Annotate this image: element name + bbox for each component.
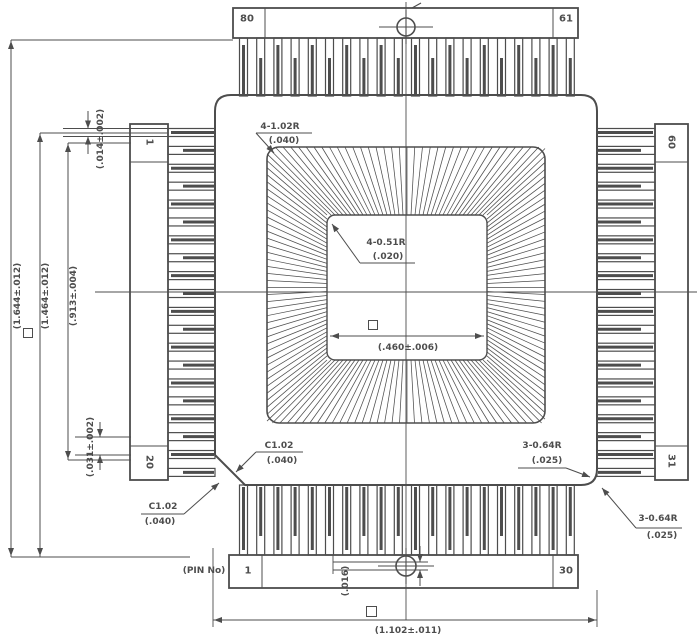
dim-lead-width: (.014±.002): [96, 109, 106, 169]
dim-lead-span-height: (.913±.004): [69, 266, 79, 326]
label-corner3-2: 3-0.64R: [638, 514, 677, 524]
label-chamfer-2-ref: (.040): [145, 517, 175, 527]
label-corner3-2-ref: (.025): [647, 531, 677, 541]
drawing-linework: [0, 0, 697, 641]
dim-overall-height: (1.644±.012): [13, 263, 23, 329]
qfp-package-drawing: 80 61 60 31 1 20 1 30 (PIN No) (1.644±.0…: [0, 0, 697, 641]
square-symbol-left: [23, 328, 33, 338]
pin-number-left-bottom: 20: [144, 455, 155, 469]
label-chamfer-2: C1.02: [149, 502, 178, 512]
pin-number-bottom-right: 30: [559, 566, 573, 577]
pin-no-caption: (PIN No): [183, 566, 226, 576]
pin-number-right-bottom: 31: [666, 454, 677, 468]
label-chamfer-1-ref: (.040): [267, 456, 297, 466]
label-die-radius: 4-0.51R: [366, 238, 405, 248]
pin-number-top-left: 80: [240, 14, 254, 25]
pin-number-left-top: 1: [144, 139, 155, 146]
pin-number-right-top: 60: [666, 135, 677, 149]
label-corner3-1: 3-0.64R: [522, 441, 561, 451]
dim-lead-pitch: (.031±.002): [86, 417, 96, 477]
square-symbol-bottom: [366, 606, 377, 617]
square-symbol-center: [368, 320, 378, 330]
dim-overall-width: (1.102±.011): [375, 626, 441, 636]
pin-number-top-right: 61: [559, 14, 573, 25]
pin-number-bottom-left: 1: [245, 566, 252, 577]
dim-die-width: (.460±.006): [378, 343, 438, 353]
label-chamfer-1: C1.02: [265, 441, 294, 451]
dim-lead-thickness: (.016): [341, 566, 351, 596]
label-die-radius-ref: (.020): [373, 252, 403, 262]
label-cavity-radius: 4-1.02R: [260, 122, 299, 132]
dim-inner-height: (1.464±.012): [41, 263, 51, 329]
label-corner3-1-ref: (.025): [532, 456, 562, 466]
label-cavity-radius-ref: (.040): [269, 136, 299, 146]
